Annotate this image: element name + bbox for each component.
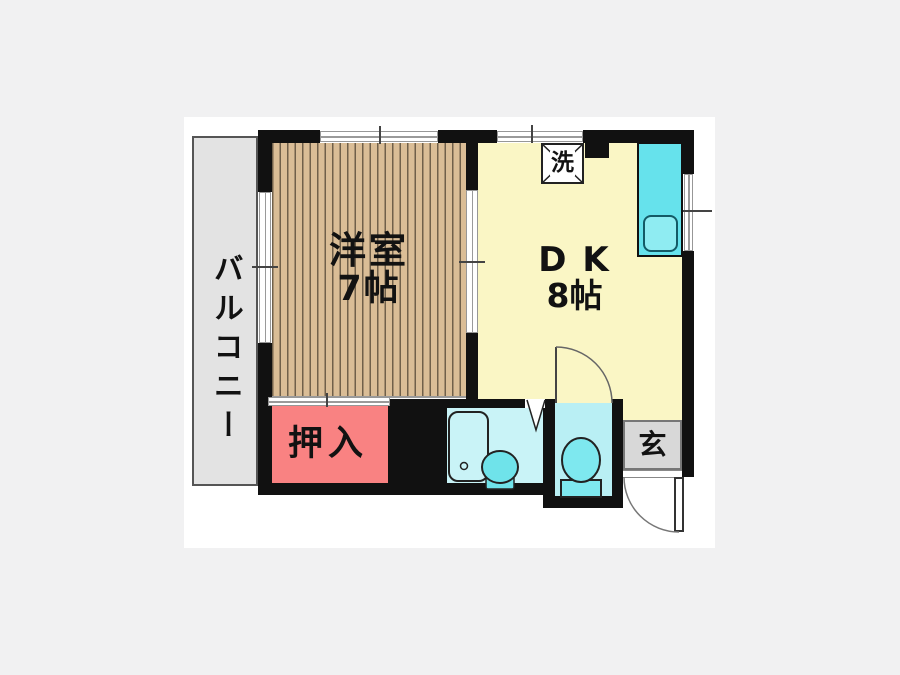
tick-kitchen-window bbox=[681, 210, 712, 212]
dining-kitchen-label: D K 8帖 bbox=[487, 228, 662, 328]
tick-window-dk bbox=[531, 125, 533, 143]
wall-partition-lower bbox=[466, 333, 478, 399]
western-room-name: 洋室 bbox=[329, 232, 409, 271]
window-dk-top bbox=[497, 131, 583, 142]
wall-top-protrusion bbox=[585, 143, 609, 158]
sliding-door-closet bbox=[268, 397, 390, 406]
wall-left-upper bbox=[258, 130, 272, 192]
closet-label: 押入 bbox=[268, 406, 388, 483]
dining-kitchen-size: 8帖 bbox=[547, 279, 603, 314]
front-door-leaf bbox=[674, 477, 684, 532]
entrance-label: 玄 bbox=[623, 420, 682, 470]
wall-toilet-left bbox=[543, 399, 555, 508]
wall-top-middle bbox=[438, 130, 497, 143]
wall-partition-upper bbox=[466, 143, 478, 190]
window-kitchen-right bbox=[684, 174, 693, 251]
wall-right-lower bbox=[682, 251, 694, 477]
wall-toilet-right bbox=[612, 399, 623, 508]
western-room-size: 7帖 bbox=[337, 271, 400, 308]
wall-right-upper bbox=[682, 130, 694, 174]
tick-closet-door bbox=[326, 393, 328, 407]
washing-machine-pan: 洗 bbox=[541, 143, 584, 184]
western-room-label: 洋室 7帖 bbox=[272, 212, 466, 327]
service-core-black-area bbox=[388, 399, 447, 495]
floor-plan: 洗 バルコニー 洋室 7帖 D K 8帖 押入 玄 bbox=[0, 0, 900, 675]
wall-bottom bbox=[258, 483, 545, 495]
tick-window-western bbox=[379, 126, 381, 144]
wall-bathroom-top bbox=[447, 399, 527, 408]
laundry-label: 洗 bbox=[550, 151, 575, 175]
bathtub bbox=[448, 411, 489, 482]
dining-kitchen-name: D K bbox=[538, 243, 610, 279]
balcony-label: バルコニー bbox=[204, 205, 246, 495]
wall-toilet-bottom bbox=[543, 496, 623, 508]
toilet-room-area bbox=[555, 403, 612, 496]
bathroom-door-gap bbox=[525, 399, 545, 408]
